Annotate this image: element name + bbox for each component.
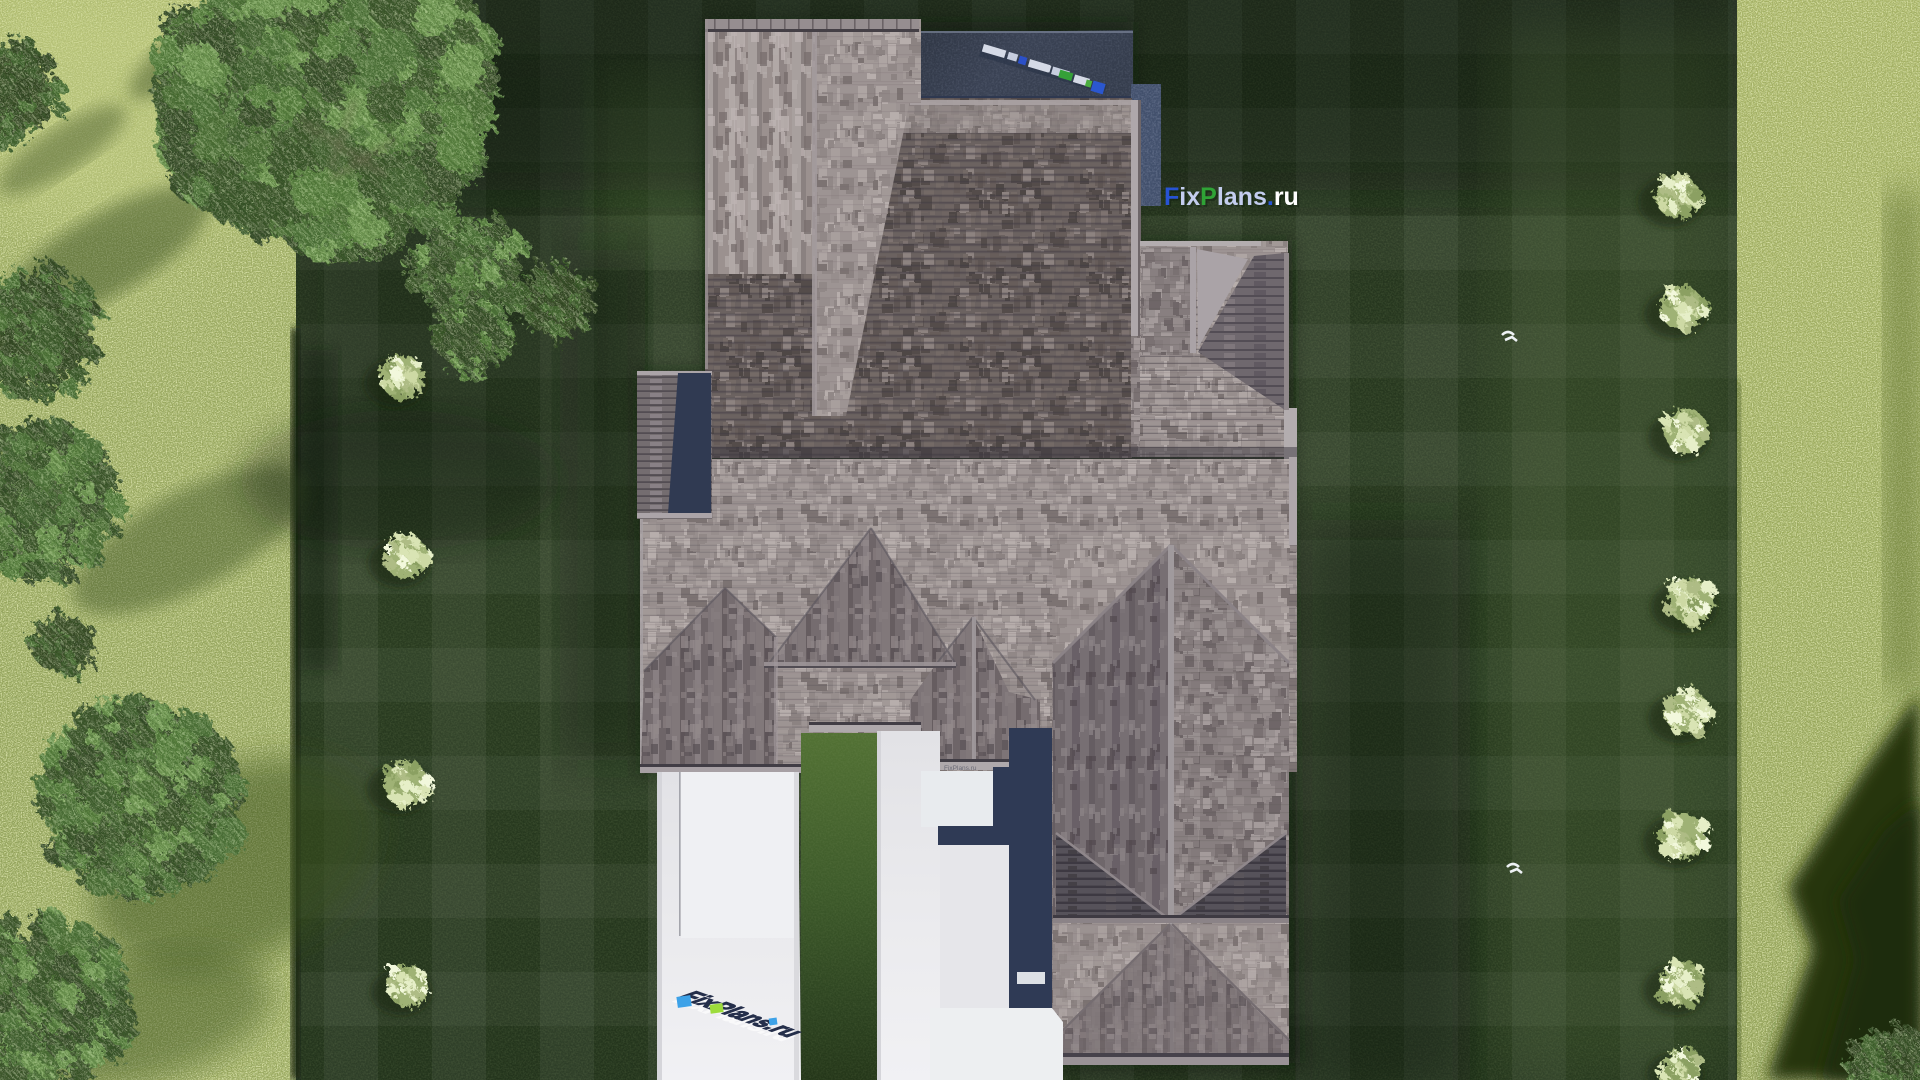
svg-text:FixPlans.ru: FixPlans.ru: [944, 765, 977, 772]
svg-text:FixPlans.ru: FixPlans.ru: [1164, 183, 1299, 211]
